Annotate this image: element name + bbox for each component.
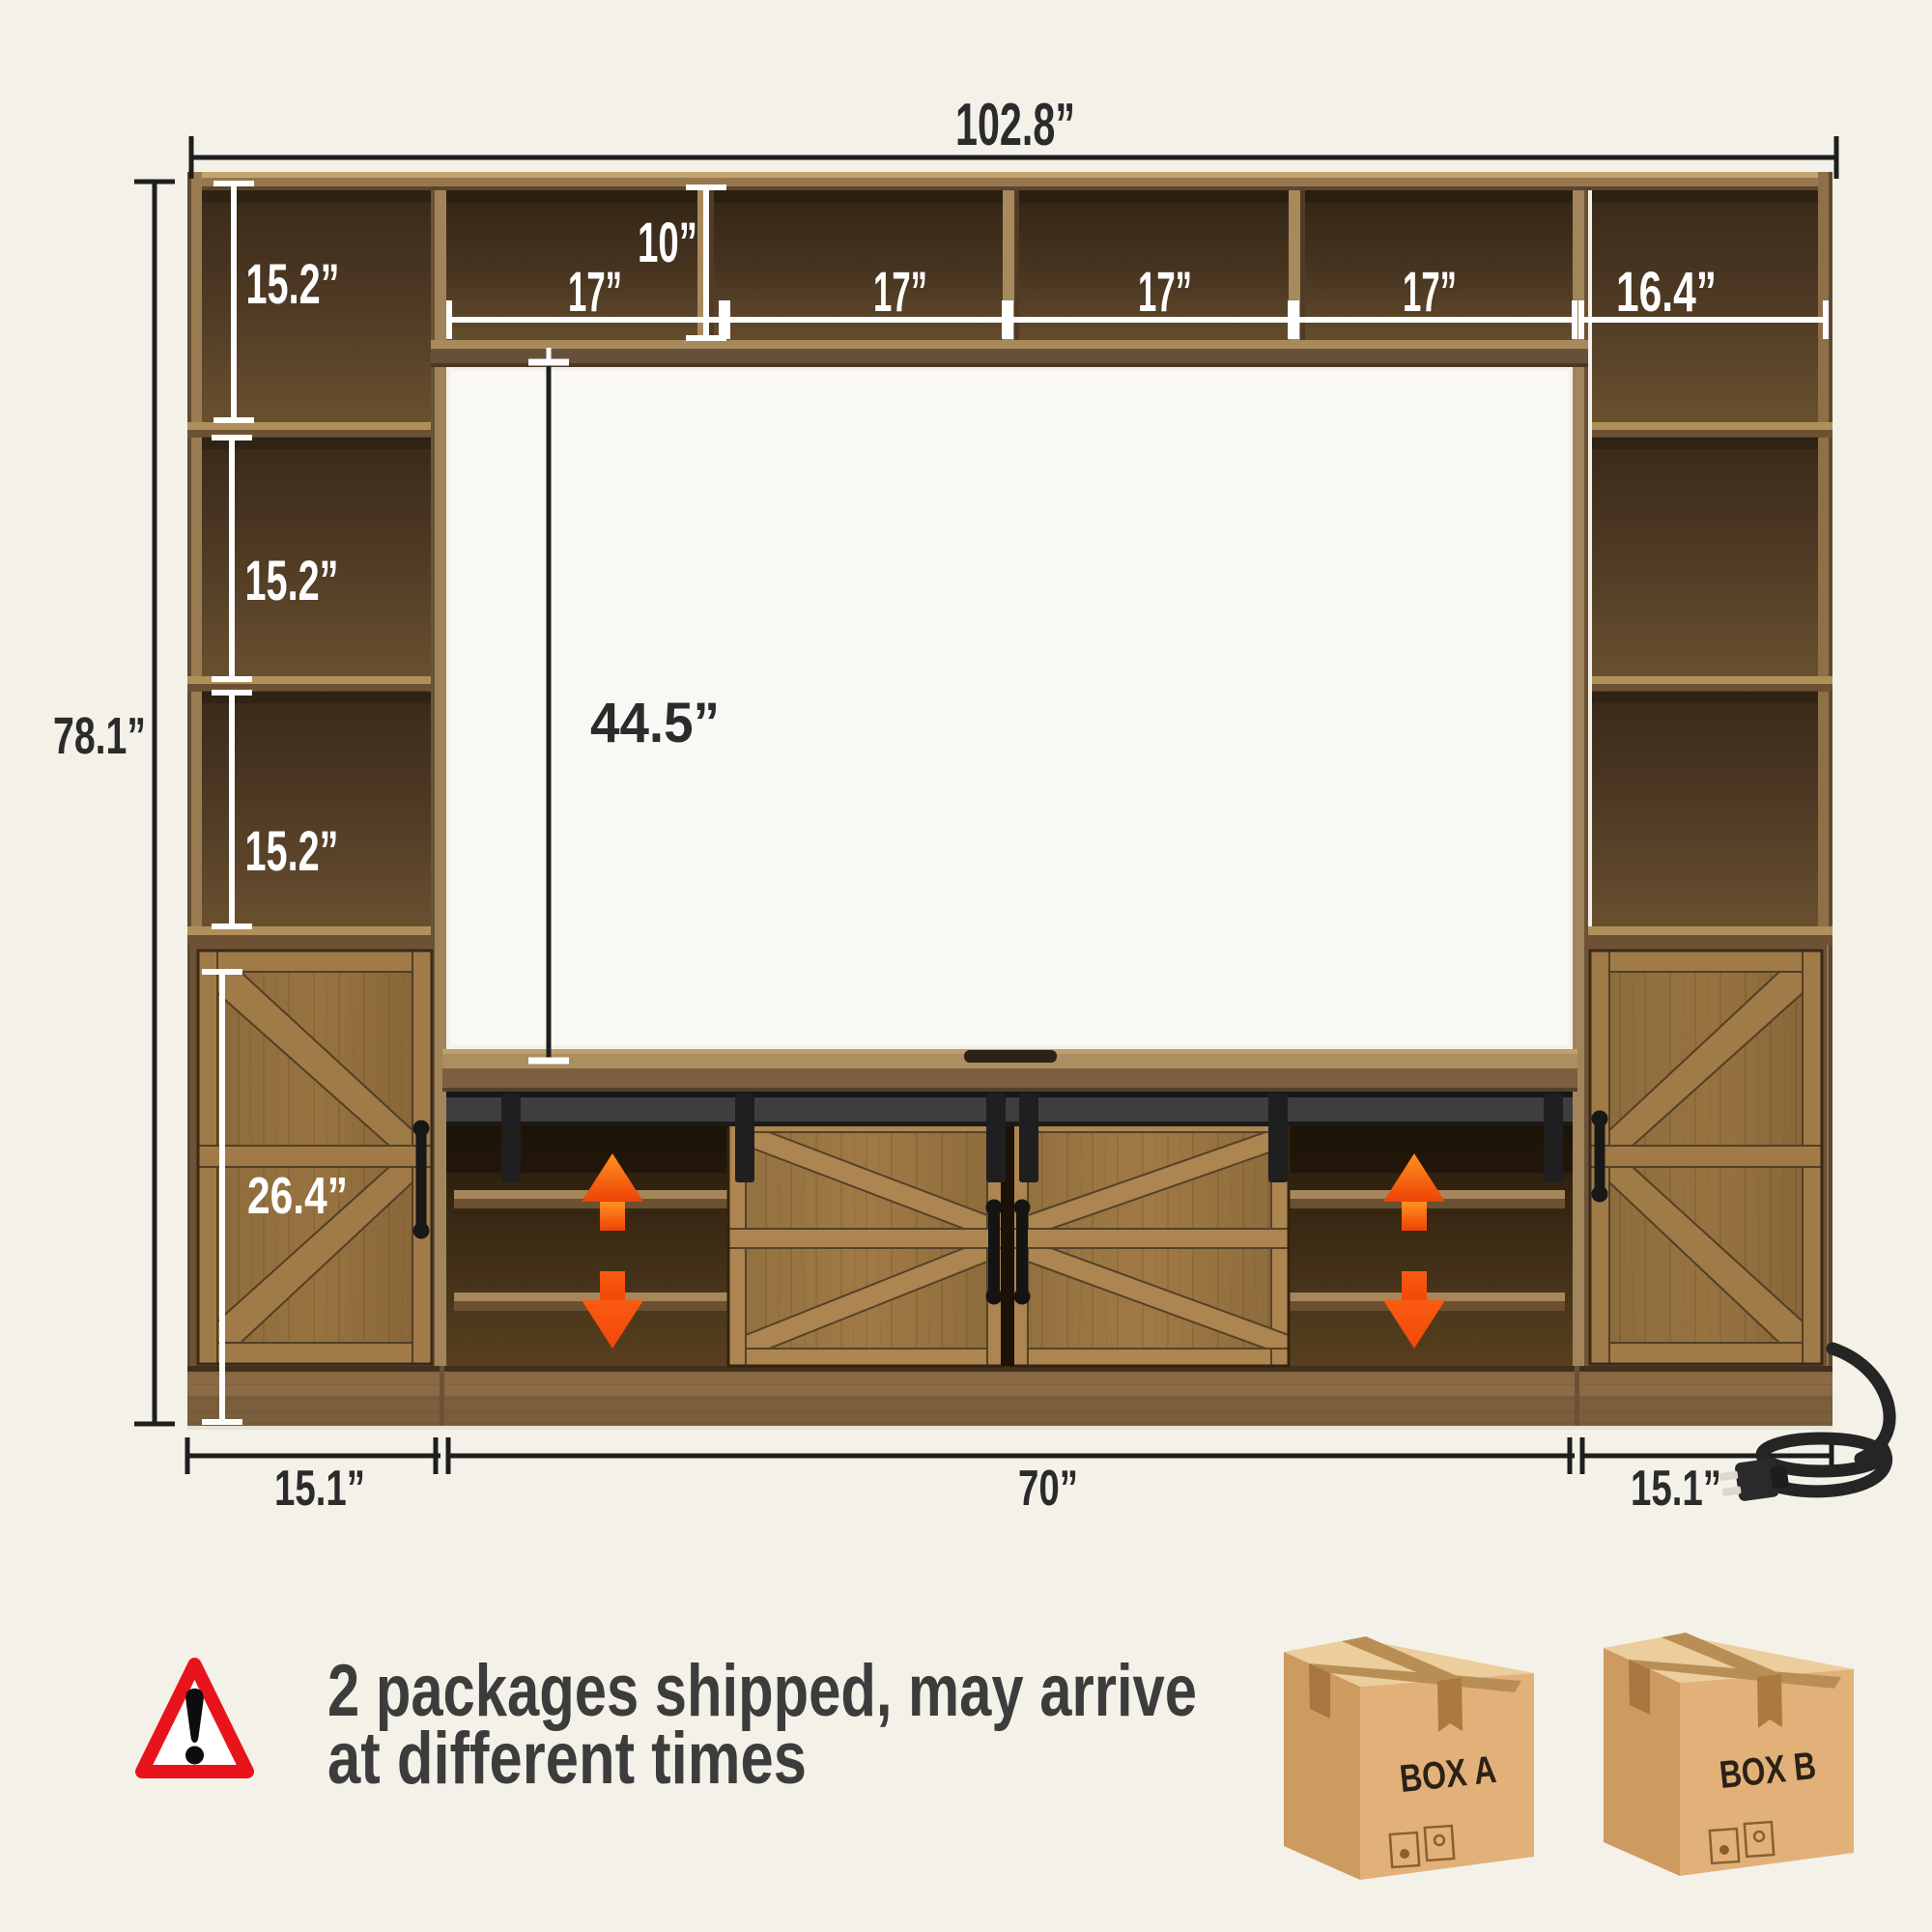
svg-text:70”: 70” [1018, 1461, 1078, 1517]
svg-text:15.2”: 15.2” [245, 550, 339, 612]
svg-text:15.2”: 15.2” [246, 253, 340, 316]
svg-text:102.8”: 102.8” [955, 92, 1075, 158]
svg-text:17”: 17” [1138, 261, 1192, 324]
svg-text:16.4”: 16.4” [1616, 261, 1717, 324]
svg-text:17”: 17” [873, 261, 927, 324]
svg-text:26.4”: 26.4” [247, 1167, 348, 1225]
svg-text:44.5”: 44.5” [590, 692, 720, 754]
svg-text:10”: 10” [638, 212, 697, 274]
svg-text:at different times: at different times [327, 1718, 807, 1800]
svg-text:17”: 17” [1403, 261, 1457, 324]
svg-text:15.1”: 15.1” [274, 1461, 365, 1517]
svg-text:15.1”: 15.1” [1631, 1461, 1721, 1517]
svg-text:17”: 17” [568, 261, 622, 324]
svg-text:78.1”: 78.1” [53, 707, 146, 765]
svg-text:15.2”: 15.2” [245, 820, 339, 883]
